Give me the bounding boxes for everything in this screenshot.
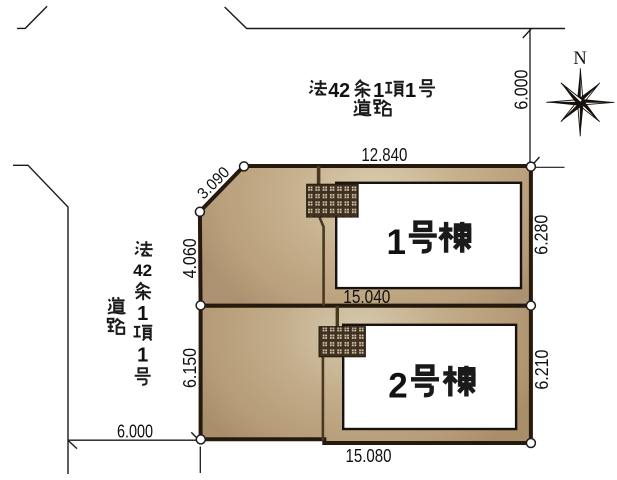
svg-text:1: 1 — [386, 223, 405, 262]
svg-text:2: 2 — [388, 366, 407, 405]
svg-text:6.280: 6.280 — [532, 215, 552, 255]
svg-text:6.150: 6.150 — [180, 348, 200, 388]
svg-text:1: 1 — [137, 303, 148, 325]
svg-text:42: 42 — [328, 80, 350, 102]
svg-text:6.210: 6.210 — [532, 350, 552, 390]
svg-text:6.000: 6.000 — [512, 70, 532, 110]
svg-text:15.040: 15.040 — [343, 287, 390, 307]
svg-text:42: 42 — [133, 261, 152, 280]
svg-text:6.000: 6.000 — [117, 421, 153, 441]
svg-text:15.080: 15.080 — [346, 446, 392, 466]
svg-text:4.060: 4.060 — [180, 238, 200, 278]
svg-text:1: 1 — [405, 80, 416, 102]
svg-text:1: 1 — [137, 345, 148, 367]
svg-text:12.840: 12.840 — [361, 145, 407, 165]
svg-text:N: N — [573, 49, 586, 69]
svg-text:1: 1 — [373, 80, 384, 102]
